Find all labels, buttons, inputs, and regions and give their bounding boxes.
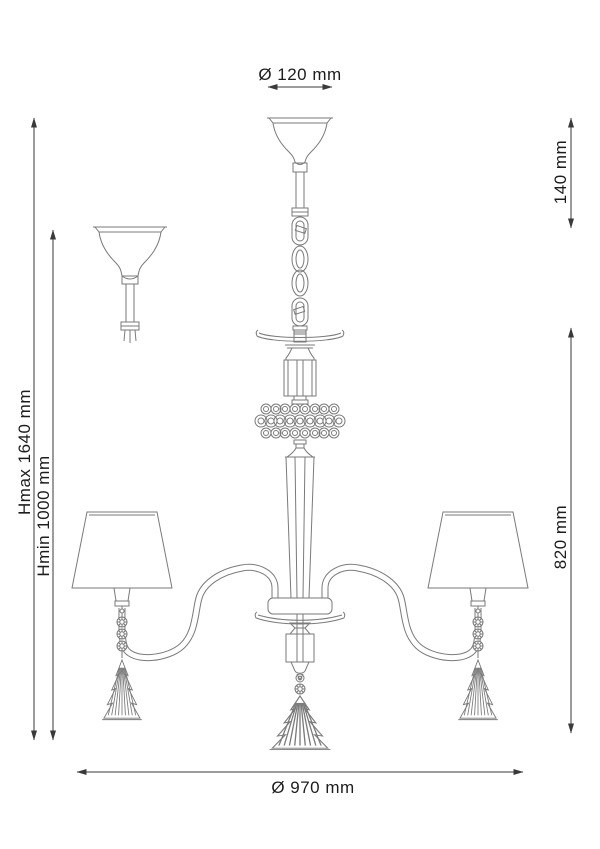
dimension-height-min: Hmin 1000 mm [34, 230, 53, 740]
ceiling-canopy [267, 118, 333, 172]
central-block [284, 360, 316, 404]
ceiling-cup-detail [93, 227, 167, 343]
arm-hub [255, 598, 345, 624]
canopy-height-label: 140 mm [551, 140, 570, 204]
upper-bobeche [256, 330, 344, 342]
upper-spindle [284, 345, 316, 360]
tapered-column [286, 457, 314, 598]
dimension-canopy-diameter: Ø 120 mm [258, 65, 341, 87]
body-height-label: 820 mm [551, 505, 570, 569]
chandelier-dimension-drawing: Ø 120 mm Hmax 1640 mm Hmin 1000 mm 140 m… [0, 0, 600, 849]
chandelier-drawing [72, 118, 528, 750]
right-arm-assembly [325, 512, 528, 720]
lower-stem [286, 614, 314, 694]
suspension-rod [296, 172, 304, 208]
height-max-label: Hmax 1640 mm [15, 389, 34, 515]
left-arm-assembly [72, 512, 275, 720]
overall-diameter-label: Ø 970 mm [271, 778, 354, 797]
dimension-overall-diameter: Ø 970 mm [77, 772, 523, 797]
dimension-canopy-height: 140 mm [551, 118, 571, 228]
central-tree-pendant [270, 696, 331, 750]
dimension-body-height: 820 mm [551, 328, 571, 733]
suspension-chain [292, 208, 308, 334]
crystal-bead-ring [255, 404, 345, 438]
ring-connector [285, 440, 315, 457]
dimension-height-max: Hmax 1640 mm [15, 118, 34, 740]
canopy-diameter-label: Ø 120 mm [258, 65, 341, 84]
height-min-label: Hmin 1000 mm [34, 455, 53, 576]
